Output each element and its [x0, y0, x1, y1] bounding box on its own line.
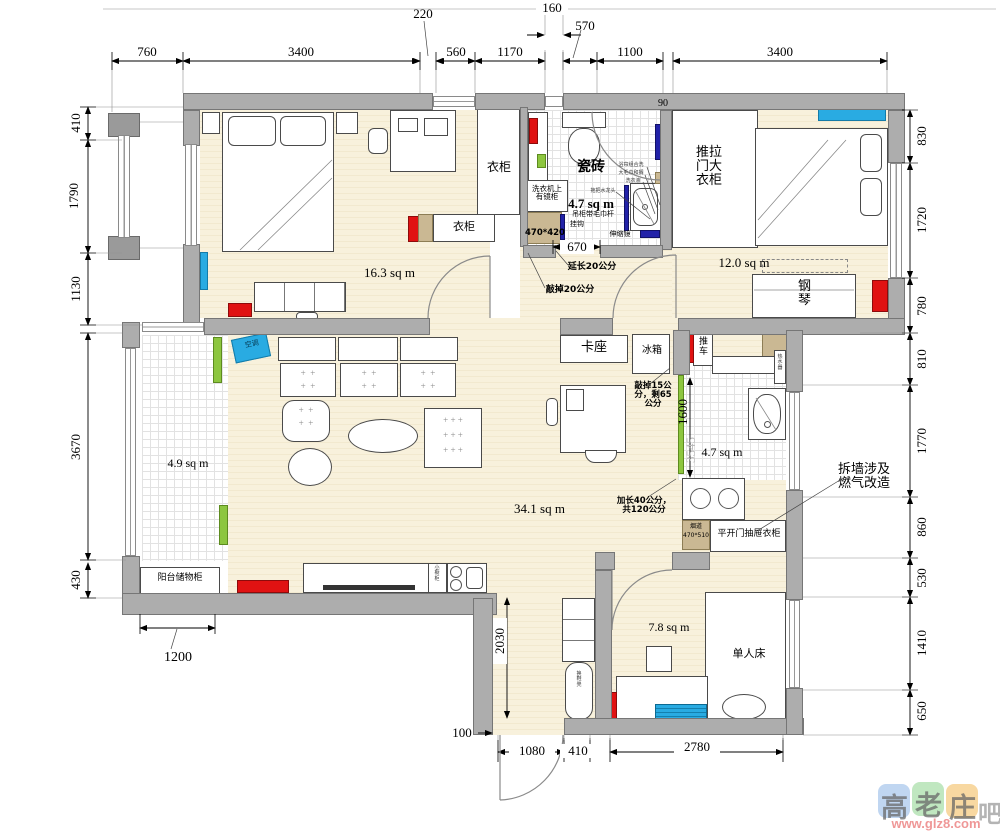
- telescopic-mirror-label: 伸缩镜: [605, 231, 635, 239]
- dim-inner-2030: 2030: [493, 618, 507, 664]
- desk-item: [398, 118, 418, 132]
- wall: [560, 318, 613, 335]
- room-label-balcony: 4.9 sq m: [158, 457, 218, 470]
- fridge-label: 冰箱: [638, 346, 666, 357]
- wall: [600, 245, 663, 258]
- hallway-opening-floor: [430, 318, 678, 335]
- dim-right-860: 860: [915, 505, 929, 549]
- red-strip: [237, 580, 289, 593]
- tile-label: 瓷砖: [574, 160, 608, 175]
- dim-right-1770: 1770: [915, 419, 929, 463]
- window: [185, 144, 197, 246]
- wall: [595, 570, 612, 735]
- dim-bottom-1200: 1200: [156, 650, 200, 665]
- wall: [183, 93, 433, 110]
- cyan-strip: [200, 252, 208, 290]
- room-label-bedroom1: 16.3 sq m: [352, 266, 427, 280]
- green-strip: [219, 505, 228, 545]
- sofa-cushion: [340, 363, 398, 397]
- dim-top-570: 570: [568, 19, 602, 33]
- wall: [475, 93, 545, 110]
- wall: [672, 552, 710, 570]
- pillow: [228, 116, 276, 146]
- wall: [660, 110, 672, 250]
- nightstand: [336, 112, 358, 134]
- dim-bottom-410: 410: [560, 744, 596, 758]
- red-cabinet: [872, 280, 888, 312]
- dim-right-810: 810: [915, 337, 929, 381]
- sofa-back: [400, 337, 458, 361]
- knock-off-20-label: 敲掉20公分: [540, 286, 600, 296]
- dim-top-1170: 1170: [489, 45, 531, 59]
- piano-label: 钢琴: [797, 280, 812, 308]
- wall: [563, 93, 905, 110]
- watermark-url: www.glz8.com: [880, 817, 992, 831]
- table-item: [566, 389, 584, 411]
- wall: [122, 322, 140, 348]
- wall: [673, 330, 690, 375]
- stool: [646, 646, 672, 672]
- bay-column: [108, 113, 140, 137]
- burner: [450, 566, 462, 578]
- red-strip: [228, 303, 252, 317]
- floor-plan: 16.3 sq m 4.7 sq m 12.0 sq m 4.9 sq m 34…: [0, 0, 1000, 840]
- tv: [323, 585, 415, 590]
- dim-right-1410: 1410: [915, 621, 929, 665]
- sliding-wardrobe-label: 推拉门大衣柜: [694, 146, 724, 188]
- dim-left-430: 430: [69, 558, 83, 602]
- bath-note-2: 大毛巾和搁: [614, 171, 648, 176]
- hanging-cabinet-label: 吊柜带毛巾杆: [569, 211, 617, 219]
- washer-label: 洗衣机上有镜柜: [530, 185, 564, 201]
- bath-note-3: 洗衣液: [620, 179, 646, 184]
- dim-right-780: 780: [915, 284, 929, 328]
- knock-off-15-label: 敲掉15公分，剩65公分: [631, 382, 675, 410]
- wall: [183, 110, 200, 146]
- wardrobe-tall-label: 衣柜: [479, 161, 519, 174]
- sink-drain: [642, 204, 648, 210]
- shoe-cabinet: [562, 598, 595, 662]
- wall: [183, 244, 200, 325]
- dim-bottom-2780: 2780: [674, 740, 720, 754]
- bath-note-1: 浴帘组合洗: [614, 163, 648, 168]
- desk-item: [424, 118, 448, 136]
- drawer-wardrobe-label: 平开门抽屉衣柜: [712, 530, 786, 540]
- bay-window: [118, 135, 130, 238]
- bay-column: [108, 236, 140, 260]
- water-heater-label: 热水器: [777, 355, 783, 371]
- cart-label: 推车: [698, 338, 709, 357]
- sofa-back: [278, 337, 336, 361]
- wall: [786, 688, 803, 735]
- chair: [368, 128, 388, 154]
- small-cabinet-label: 小橱柜: [434, 566, 440, 582]
- wall: [523, 245, 556, 258]
- dim-top-160: 160: [536, 1, 568, 15]
- room-label-kitchen: 4.7 sq m: [696, 446, 748, 459]
- wall: [786, 490, 803, 600]
- small-sink: [466, 567, 483, 589]
- demolish-note-label: 拆墙涉及燃气改造: [838, 463, 896, 491]
- window: [789, 392, 800, 490]
- dim-inner-3545: 3545: [684, 428, 698, 472]
- dim-top-560: 560: [437, 45, 475, 59]
- burner: [690, 488, 711, 509]
- pillow: [722, 694, 766, 720]
- duct-niche: [545, 96, 563, 107]
- wall: [122, 593, 497, 615]
- nightstand: [202, 112, 220, 134]
- window: [433, 96, 475, 107]
- coffee-table: [348, 419, 418, 453]
- dim-inner-670: 670: [560, 240, 594, 254]
- wall: [204, 318, 430, 335]
- dim-bottom-100: 100: [448, 726, 476, 740]
- kitchen-sink-basin: [753, 394, 781, 434]
- dim-bottom-1080: 1080: [509, 744, 555, 758]
- room-label-bedroom2: 12.0 sq m: [708, 256, 780, 270]
- dim-inner-90: 90: [652, 99, 674, 110]
- rug: [424, 408, 482, 468]
- dim-left-1130: 1130: [69, 267, 83, 311]
- washer-cab-size-label: 470*420: [525, 229, 561, 238]
- dim-right-650: 650: [915, 689, 929, 733]
- dim-right-830: 830: [915, 114, 929, 158]
- wall: [595, 552, 615, 570]
- sofa-back: [338, 337, 398, 361]
- dim-left-3670: 3670: [69, 425, 83, 469]
- window: [789, 600, 800, 688]
- sofa-cushion: [400, 363, 456, 397]
- dim-right-1720: 1720: [915, 198, 929, 242]
- dresser: [254, 282, 346, 312]
- pouf: [282, 400, 330, 442]
- dim-top-760: 760: [127, 45, 167, 59]
- green-strip: [537, 154, 546, 168]
- room-label-living: 34.1 sq m: [502, 502, 577, 516]
- toilet-tank: [562, 112, 606, 128]
- dim-top-3400a: 3400: [280, 45, 322, 59]
- chair: [585, 450, 617, 463]
- wall: [520, 107, 528, 247]
- window: [890, 163, 902, 278]
- wardrobe-low-label: 衣柜: [443, 221, 485, 233]
- wall: [888, 110, 905, 163]
- lengthen-40-label: 加长40公分，共120公分: [616, 497, 672, 515]
- wall: [786, 330, 803, 392]
- pouf: [288, 448, 332, 486]
- extend-20-label: 延长20公分: [562, 263, 622, 273]
- tan-cabinet: [418, 214, 433, 242]
- booth-label: 卡座: [572, 341, 616, 355]
- green-strip: [213, 337, 222, 383]
- dim-right-530: 530: [915, 556, 929, 600]
- burner: [718, 488, 739, 509]
- bath-note-4: 拖把水龙头: [588, 189, 618, 194]
- single-bed-label: 单人床: [726, 648, 772, 660]
- chair: [546, 398, 558, 426]
- dim-left-410: 410: [69, 101, 83, 145]
- navy-strip: [640, 230, 660, 238]
- flue-size-label: 470*510: [682, 533, 710, 539]
- wall: [564, 718, 804, 735]
- balcony-rail: [142, 322, 204, 332]
- flue-label: 烟道: [684, 524, 708, 530]
- dim-top-220: 220: [406, 7, 440, 21]
- pillow: [860, 134, 882, 172]
- burner: [450, 579, 462, 591]
- window: [125, 348, 136, 556]
- red-strip: [529, 118, 538, 144]
- shoe-bench-label: 换鞋凳: [576, 672, 582, 688]
- room-label-bathroom: 4.7 sq m: [564, 197, 618, 211]
- dim-top-1100: 1100: [609, 45, 651, 59]
- sink-drain: [764, 421, 771, 428]
- dim-left-1790: 1790: [67, 174, 81, 218]
- wall: [473, 598, 493, 735]
- navy-strip: [624, 185, 629, 231]
- sofa-cushion: [280, 363, 336, 397]
- dim-top-3400b: 3400: [758, 45, 802, 59]
- pillow: [860, 178, 882, 216]
- balcony-storage-label: 阳台储物柜: [142, 574, 218, 584]
- room-label-small-room: 7.8 sq m: [640, 621, 698, 634]
- pillow: [280, 116, 326, 146]
- hooks-label: 挂钩: [565, 221, 589, 229]
